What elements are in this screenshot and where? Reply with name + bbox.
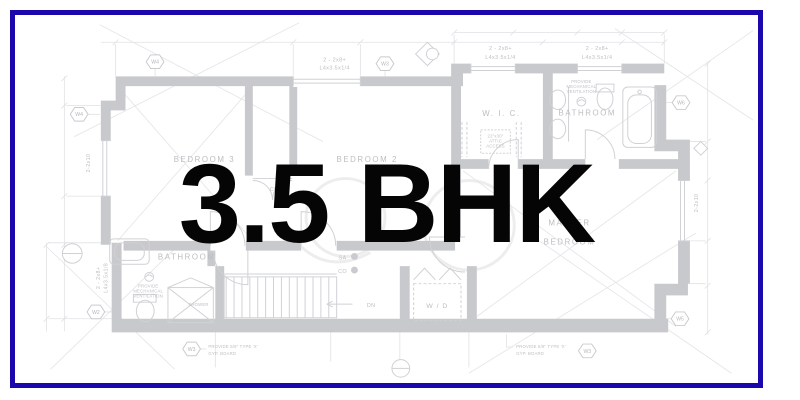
- shower-label: SHOWER: [188, 302, 208, 307]
- gyp-note: PROVIDE 5/8" TYPE 'X': [208, 344, 258, 349]
- window-marker-label: W6: [677, 101, 685, 107]
- window-marker-label: W3: [188, 347, 196, 353]
- floor-plan: W4 W4 W2 W3 W6 W5 W3 W3 BEDROOM 3 BEDROO…: [44, 23, 753, 377]
- stairs: [224, 274, 352, 318]
- beam-note-vertical: 2 - 2x8+: [96, 267, 102, 290]
- beam-note: 2 - 2x8+: [489, 46, 512, 52]
- window-marker-label: W4: [151, 60, 159, 66]
- walls: [101, 64, 690, 333]
- room-label-bedroom2: BEDROOM 2: [337, 155, 399, 164]
- shower: [168, 278, 213, 323]
- beam-note-vertical: L4x3.5x1/8: [104, 263, 110, 293]
- beam-note: 2 - 2x8+: [586, 46, 609, 52]
- smoke-detector-dots: [351, 253, 358, 273]
- stairs-dn-label: DN: [367, 303, 376, 309]
- room-label-master-2: BEDROOM: [544, 238, 596, 247]
- window-marker-label: W3: [583, 349, 591, 355]
- stairs-direction-arrow: [327, 301, 353, 307]
- gyp-note: PROVIDE 5/8" TYPE 'X': [516, 344, 566, 349]
- watermark-swirl: [301, 179, 514, 271]
- window-marker-label: W5: [676, 317, 684, 323]
- beam-note: L4x3.5x1/4: [485, 55, 515, 61]
- room-label-bedroom3: BEDROOM 3: [174, 155, 236, 164]
- washer-dryer-box: [414, 268, 461, 321]
- vent-note: VENTILATION: [567, 89, 597, 94]
- room-label-bathroom-left: BATHROOM: [158, 252, 216, 261]
- window-marker-label: W4: [75, 112, 83, 118]
- smoke-alarm-label: SA: [339, 255, 347, 261]
- attic-note: ACCESS: [486, 143, 505, 148]
- co-detector-label: CO: [338, 269, 347, 275]
- toilet-left: [133, 294, 156, 321]
- room-label-closet: CL.: [270, 187, 280, 193]
- beam-note: 2 - 2x8+: [323, 58, 346, 64]
- bathtub: [623, 87, 657, 147]
- joist-note: 2-2x10: [86, 154, 92, 173]
- listing-image: W4 W4 W2 W3 W6 W5 W3 W3 BEDROOM 3 BEDROO…: [0, 0, 800, 400]
- gyp-note: GYP. BOARD: [516, 351, 544, 356]
- floor-plan-drawing: W4 W4 W2 W3 W6 W5 W3 W3 BEDROOM 3 BEDROO…: [15, 15, 758, 383]
- gyp-note: GYP. BOARD: [208, 351, 236, 356]
- beam-note: L4x3.5x1/4: [582, 55, 612, 61]
- window-marker-label: W3: [381, 62, 389, 68]
- window-glazing: [101, 64, 690, 241]
- beam-note: L4x3.5x1/4: [319, 66, 349, 72]
- toilet-top: [596, 84, 614, 109]
- room-label-bathroom-top: BATHROOM: [559, 108, 617, 117]
- room-label-master-1: MASTER: [548, 218, 590, 227]
- room-label-laundry: W / D: [426, 303, 448, 310]
- joist-note: 2-2x10: [694, 194, 700, 213]
- room-label-wic: W. I. C.: [482, 109, 520, 118]
- door-arcs: [210, 130, 615, 285]
- vent-note: VENTILATION: [133, 293, 163, 298]
- window-marker-label: W2: [92, 310, 100, 316]
- blue-border-frame: W4 W4 W2 W3 W6 W5 W3 W3 BEDROOM 3 BEDROO…: [10, 10, 763, 388]
